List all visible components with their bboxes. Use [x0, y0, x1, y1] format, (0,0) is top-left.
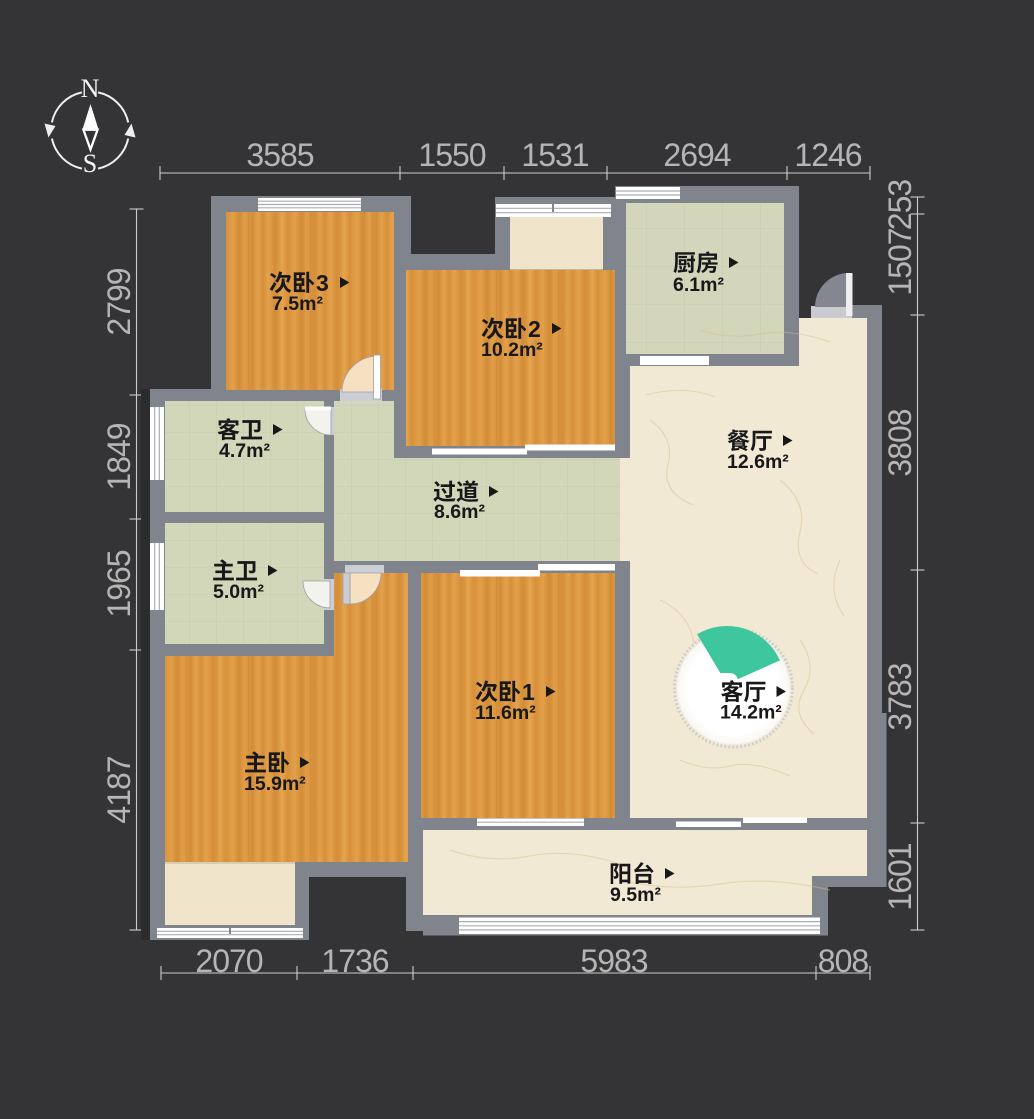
svg-text:5.0m²: 5.0m² — [213, 581, 264, 603]
svg-text:S: S — [83, 149, 97, 178]
svg-text:1736: 1736 — [321, 943, 388, 979]
svg-text:2694: 2694 — [663, 137, 730, 173]
svg-text:15.9m²: 15.9m² — [244, 773, 306, 795]
svg-text:3585: 3585 — [246, 137, 313, 173]
svg-text:11.6m²: 11.6m² — [475, 702, 536, 724]
svg-text:4.7m²: 4.7m² — [219, 440, 270, 462]
svg-text:14.2m²: 14.2m² — [720, 702, 782, 724]
svg-text:1965: 1965 — [101, 550, 137, 617]
svg-text:2070: 2070 — [195, 943, 262, 979]
svg-text:1531: 1531 — [521, 137, 588, 173]
svg-text:1507: 1507 — [882, 228, 918, 295]
svg-text:2799: 2799 — [101, 268, 137, 335]
svg-text:8.6m²: 8.6m² — [434, 501, 485, 523]
svg-text:6.1m²: 6.1m² — [673, 274, 724, 296]
svg-text:12.6m²: 12.6m² — [727, 451, 789, 473]
svg-text:4187: 4187 — [101, 756, 137, 823]
svg-text:3808: 3808 — [882, 409, 918, 476]
svg-text:253: 253 — [882, 180, 918, 231]
svg-text:808: 808 — [818, 943, 869, 979]
svg-text:5983: 5983 — [580, 943, 647, 979]
svg-text:1550: 1550 — [418, 137, 485, 173]
svg-text:1601: 1601 — [882, 843, 918, 910]
svg-text:9.5m²: 9.5m² — [610, 884, 661, 906]
svg-text:N: N — [81, 74, 100, 103]
svg-text:3783: 3783 — [882, 663, 918, 730]
svg-text:1849: 1849 — [101, 423, 137, 490]
svg-text:7.5m²: 7.5m² — [272, 293, 323, 315]
svg-text:1246: 1246 — [794, 137, 861, 173]
svg-text:10.2m²: 10.2m² — [481, 339, 543, 361]
